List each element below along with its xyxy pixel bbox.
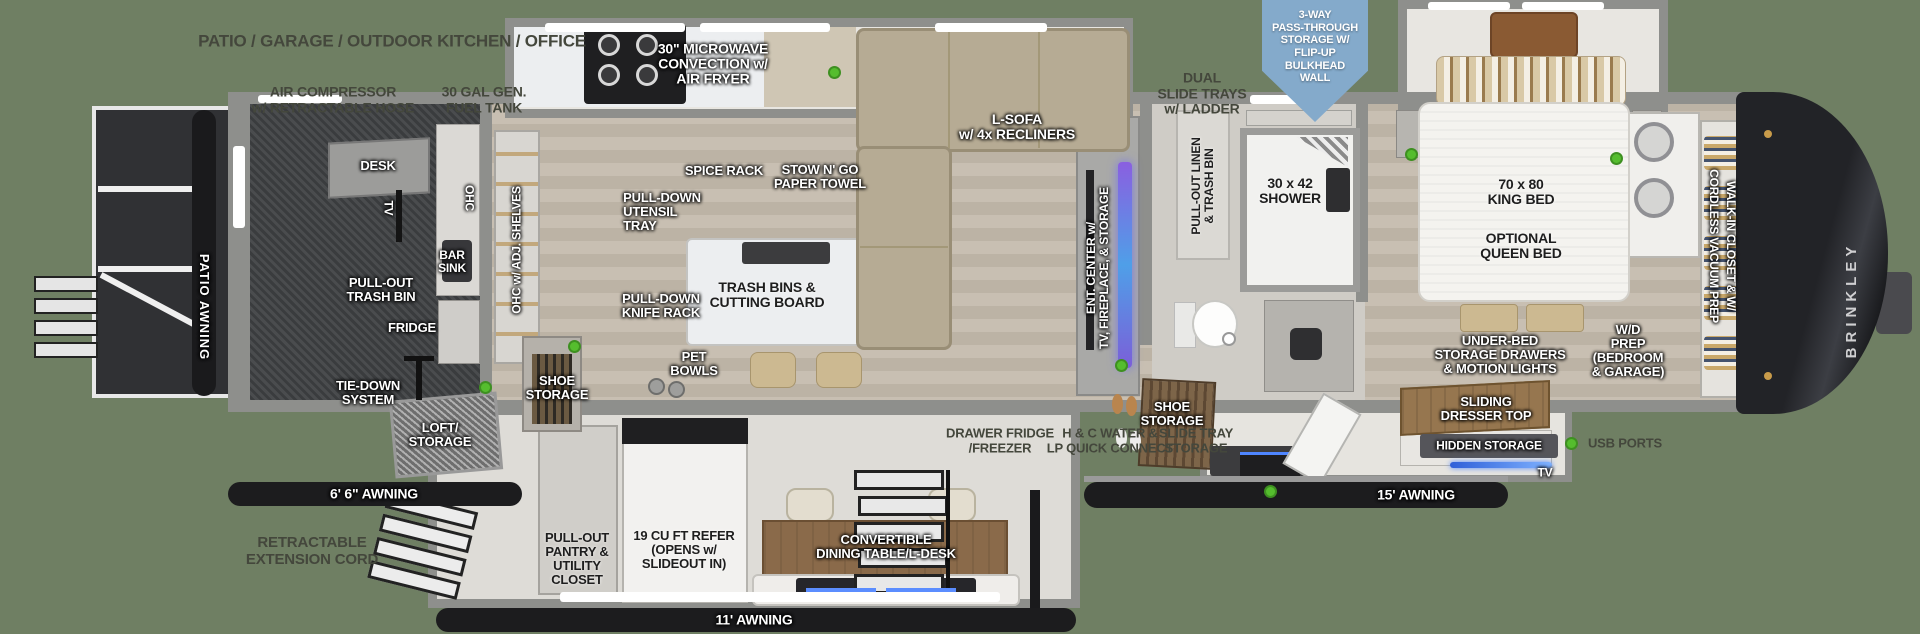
ohc-label: OHC [463,185,476,211]
loft-storage-label: LOFT/ STORAGE [409,421,472,449]
tie-down-post [416,356,422,400]
dining-slideout-window [560,592,1000,602]
walk-in-closet-label: WALK-IN CLOSET & W/ CORDLESS VACUUM PREP [1705,169,1739,323]
tv-bedroom-label: TV [1538,467,1553,480]
fireplace-strip [1118,162,1132,368]
awning-11-label: 11' AWNING [715,612,792,627]
green-indicator-dot [1264,485,1277,498]
under-bed-label: UNDER-BED STORAGE DRAWERS & MOTION LIGHT… [1434,334,1565,376]
spice-rack-label: SPICE RACK [685,164,763,178]
refer-top-band [622,418,748,444]
passthrough-shield-label: 3-WAY PASS-THROUGH STORAGE W/ FLIP-UP BU… [1272,9,1358,85]
green-indicator-dot [568,340,581,353]
linen-label: PULL-OUT LINEN & TRASH BIN [1190,137,1216,234]
hidden-storage-label: HIDDEN STORAGE [1436,440,1542,453]
knife-rack-label: PULL-DOWN KNIFE RACK [622,292,700,320]
pet-bowl-1 [648,378,665,395]
shoe-storage-kitchen-label: SHOE STORAGE [526,374,589,402]
stove-burner-4 [636,64,658,86]
retractable-cord-label: RETRACTABLE EXTENSION CORD [246,535,378,569]
rear-steps [34,276,98,360]
microwave-label: 30" MICROWAVE CONVECTION w/ AIR FRYER [658,41,768,86]
awning-6-6-label: 6' 6" AWNING [330,486,418,501]
zone-label-patio-garage: PATIO / GARAGE / OUTDOOR KITCHEN / OFFIC… [198,31,586,50]
sandal-1 [1112,394,1123,414]
usb-ports-indicator-dot [1565,437,1578,450]
headboard-pillow [1490,12,1578,58]
sandal-2 [1126,396,1137,416]
garage-tv [396,190,402,242]
patio-rail-2 [98,266,194,272]
kitchen-cabinet-tan [764,27,856,107]
desk-label: DESK [360,159,395,173]
garage-kitchen-wall [480,92,492,412]
stove-burner-1 [598,34,620,56]
hc-water-label: H & C WATER & LP QUICK CONNECT [1047,426,1174,455]
island-label: TRASH BINS & CUTTING BOARD [710,280,825,310]
toilet-paper-roll [1222,332,1236,346]
desk-led-2 [886,588,956,592]
drawer-fridge-label: DRAWER FRIDGE /FREEZER [946,426,1054,455]
green-indicator-dot [828,66,841,79]
rear-wall [228,92,250,412]
patio-awning-label: PATIO AWNING [197,254,211,360]
refer-box [622,418,748,603]
front-cap [1736,92,1888,414]
floorplan-canvas: 3-WAY PASS-THROUGH STORAGE W/ FLIP-UP BU… [0,0,1920,634]
washer-door [1634,122,1674,162]
slide-tray-storage-label: SLIDE TRAY STORAGE [1159,426,1233,455]
bath-sink [1290,328,1322,360]
shoe-storage-bath-label: SHOE STORAGE [1141,400,1204,428]
island-sink [742,242,830,264]
front-passthrough-tray [1246,110,1352,126]
pet-bowls-label: PET BOWLS [670,350,717,378]
air-compressor-label: AIR COMPRESSOR w/ RETRACTABLE HOSE [252,84,414,115]
dryer-door [1634,178,1674,218]
bed-slideout-window-2 [1522,2,1604,10]
island-stool-1 [750,352,796,388]
stove-burner-2 [636,34,658,56]
utensil-tray-label: PULL-DOWN UTENSIL TRAY [623,191,701,233]
green-indicator-dot [479,381,492,394]
shower-control [1326,168,1350,212]
dual-slide-trays-label: DUAL SLIDE TRAYS w/ LADDER [1157,70,1246,117]
striped-blanket [1436,56,1626,106]
brinkley-logo: BRINKLEY [1844,242,1860,359]
island-stool-2 [816,352,862,388]
shower-label: 30 x 42 SHOWER [1259,176,1321,206]
green-indicator-dot [1610,152,1623,165]
l-sofa-label: L-SOFA w/ 4x RECLINERS [959,112,1075,142]
cap-marker-light-top [1764,130,1772,138]
dining-label: CONVERTIBLE DINING TABLE/L-DESK [816,533,956,561]
bed-bench-1 [1460,304,1518,332]
sofa-seam-1 [948,32,950,148]
tie-down-label: TIE-DOWN SYSTEM [336,379,400,407]
sliding-dresser-label: SLIDING DRESSER TOP [1441,395,1532,423]
rear-door [233,146,245,228]
pet-bowl-2 [668,381,685,398]
garage-fridge [438,300,480,364]
ent-center-label: ENT. CENTER w/ TV, FIREPLACE, & STORAGE [1085,187,1111,349]
wd-prep-label: W/D PREP (BEDROOM & GARAGE) [1592,323,1665,379]
queen-bed-label: OPTIONAL QUEEN BED [1480,231,1561,261]
bed-slideout-window-1 [1428,2,1510,10]
green-indicator-dot [1115,359,1128,372]
stow-n-go-label: STOW N' GO PAPER TOWEL [774,163,866,191]
stove-burner-3 [598,64,620,86]
usb-ports-label: USB PORTS [1588,437,1662,452]
desk-led-1 [806,588,876,592]
bar-sink-label: BAR SINK [438,249,466,275]
cap-marker-light-bottom [1764,372,1772,380]
patio-rail-1 [98,186,194,192]
sofa-chaise-section [856,146,952,350]
refer-label: 19 CU FT REFER (OPENS w/ SLIDEOUT IN) [633,529,734,571]
green-indicator-dot [1405,148,1418,161]
pull-out-trash-label: PULL-OUT TRASH BIN [347,276,416,304]
ohc-adj-shelves-label: OHC w/ ADJ. SHELVES [511,186,524,314]
fridge-label: FRIDGE [388,321,436,335]
sofa-seam-3 [860,246,948,248]
sofa-slideout-window [935,23,1047,32]
kitchen-slideout-window-2 [700,23,830,32]
king-bed-label: 70 x 80 KING BED [1488,177,1555,207]
awning-15-label: 15' AWNING [1377,487,1455,502]
dining-chair-1 [786,488,834,522]
bed-bench-2 [1526,304,1584,332]
fuel-tank-label: 30 GAL GEN. FUEL TANK [442,84,527,115]
tv-garage-label: TV [382,201,395,216]
pantry-label: PULL-OUT PANTRY & UTILITY CLOSET [545,531,609,587]
